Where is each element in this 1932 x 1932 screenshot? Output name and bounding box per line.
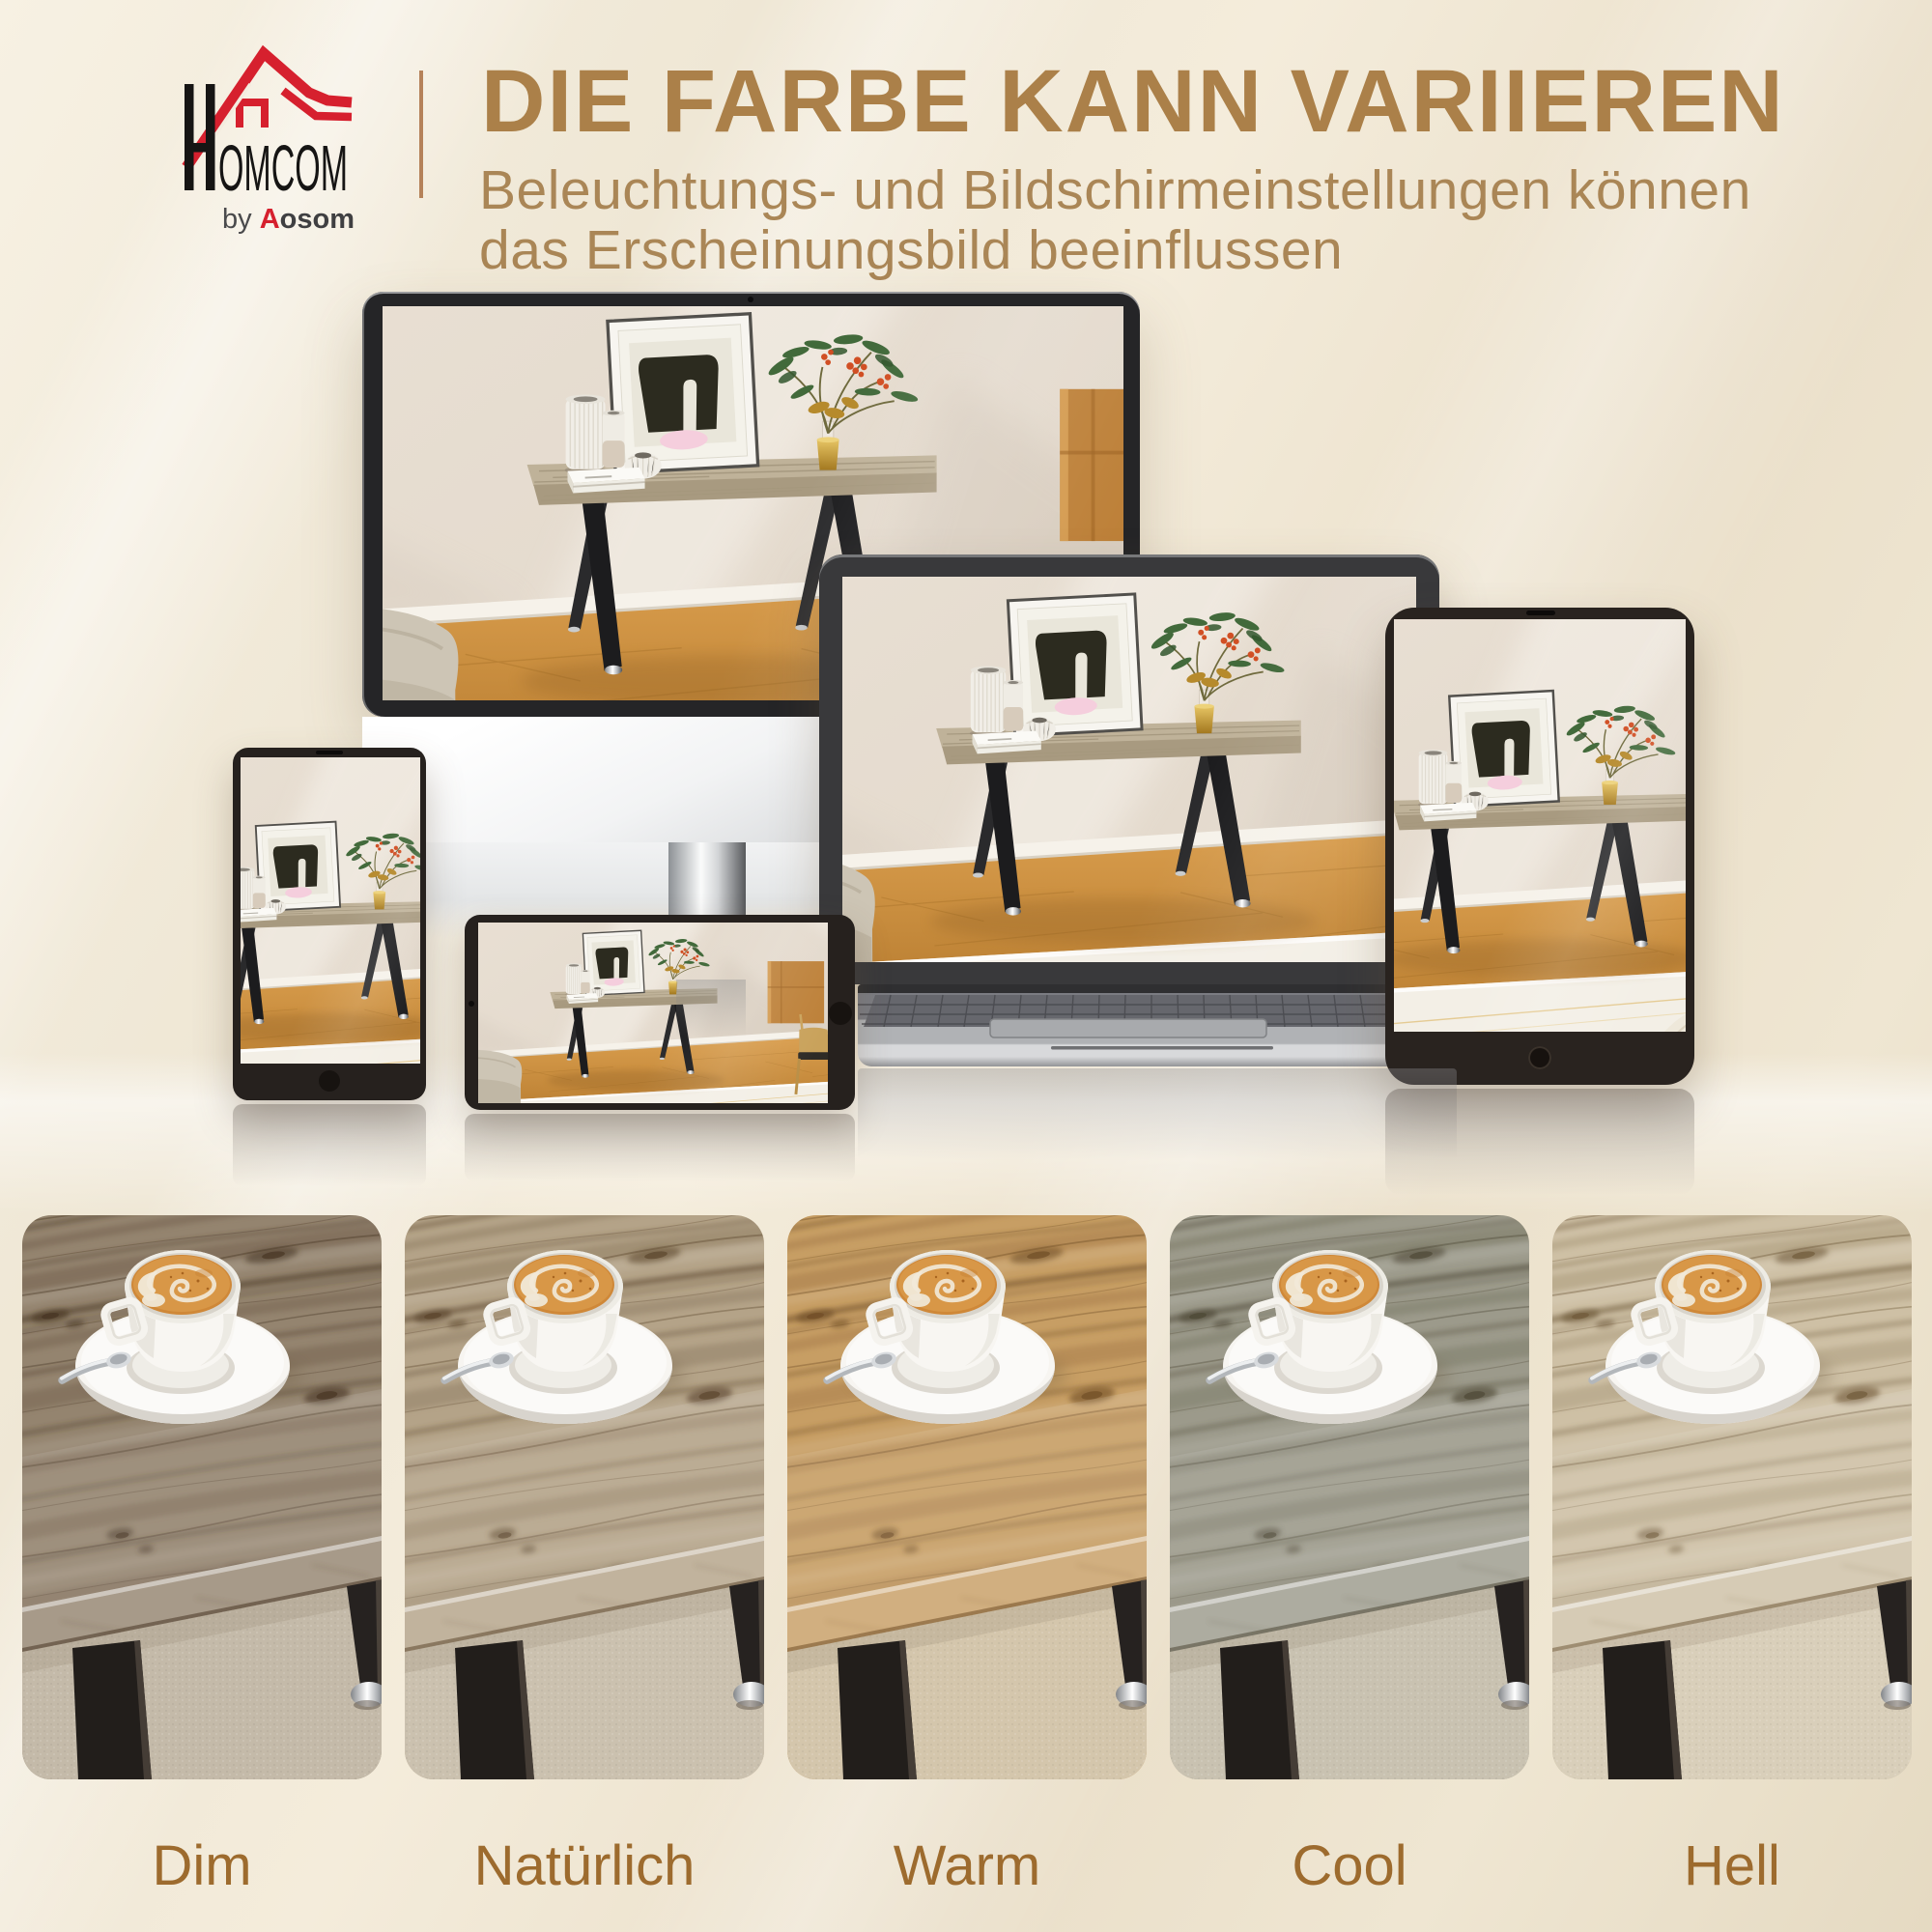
svg-text:OMCOM: OMCOM xyxy=(218,132,348,205)
svg-text:by Aosom: by Aosom xyxy=(222,204,355,235)
